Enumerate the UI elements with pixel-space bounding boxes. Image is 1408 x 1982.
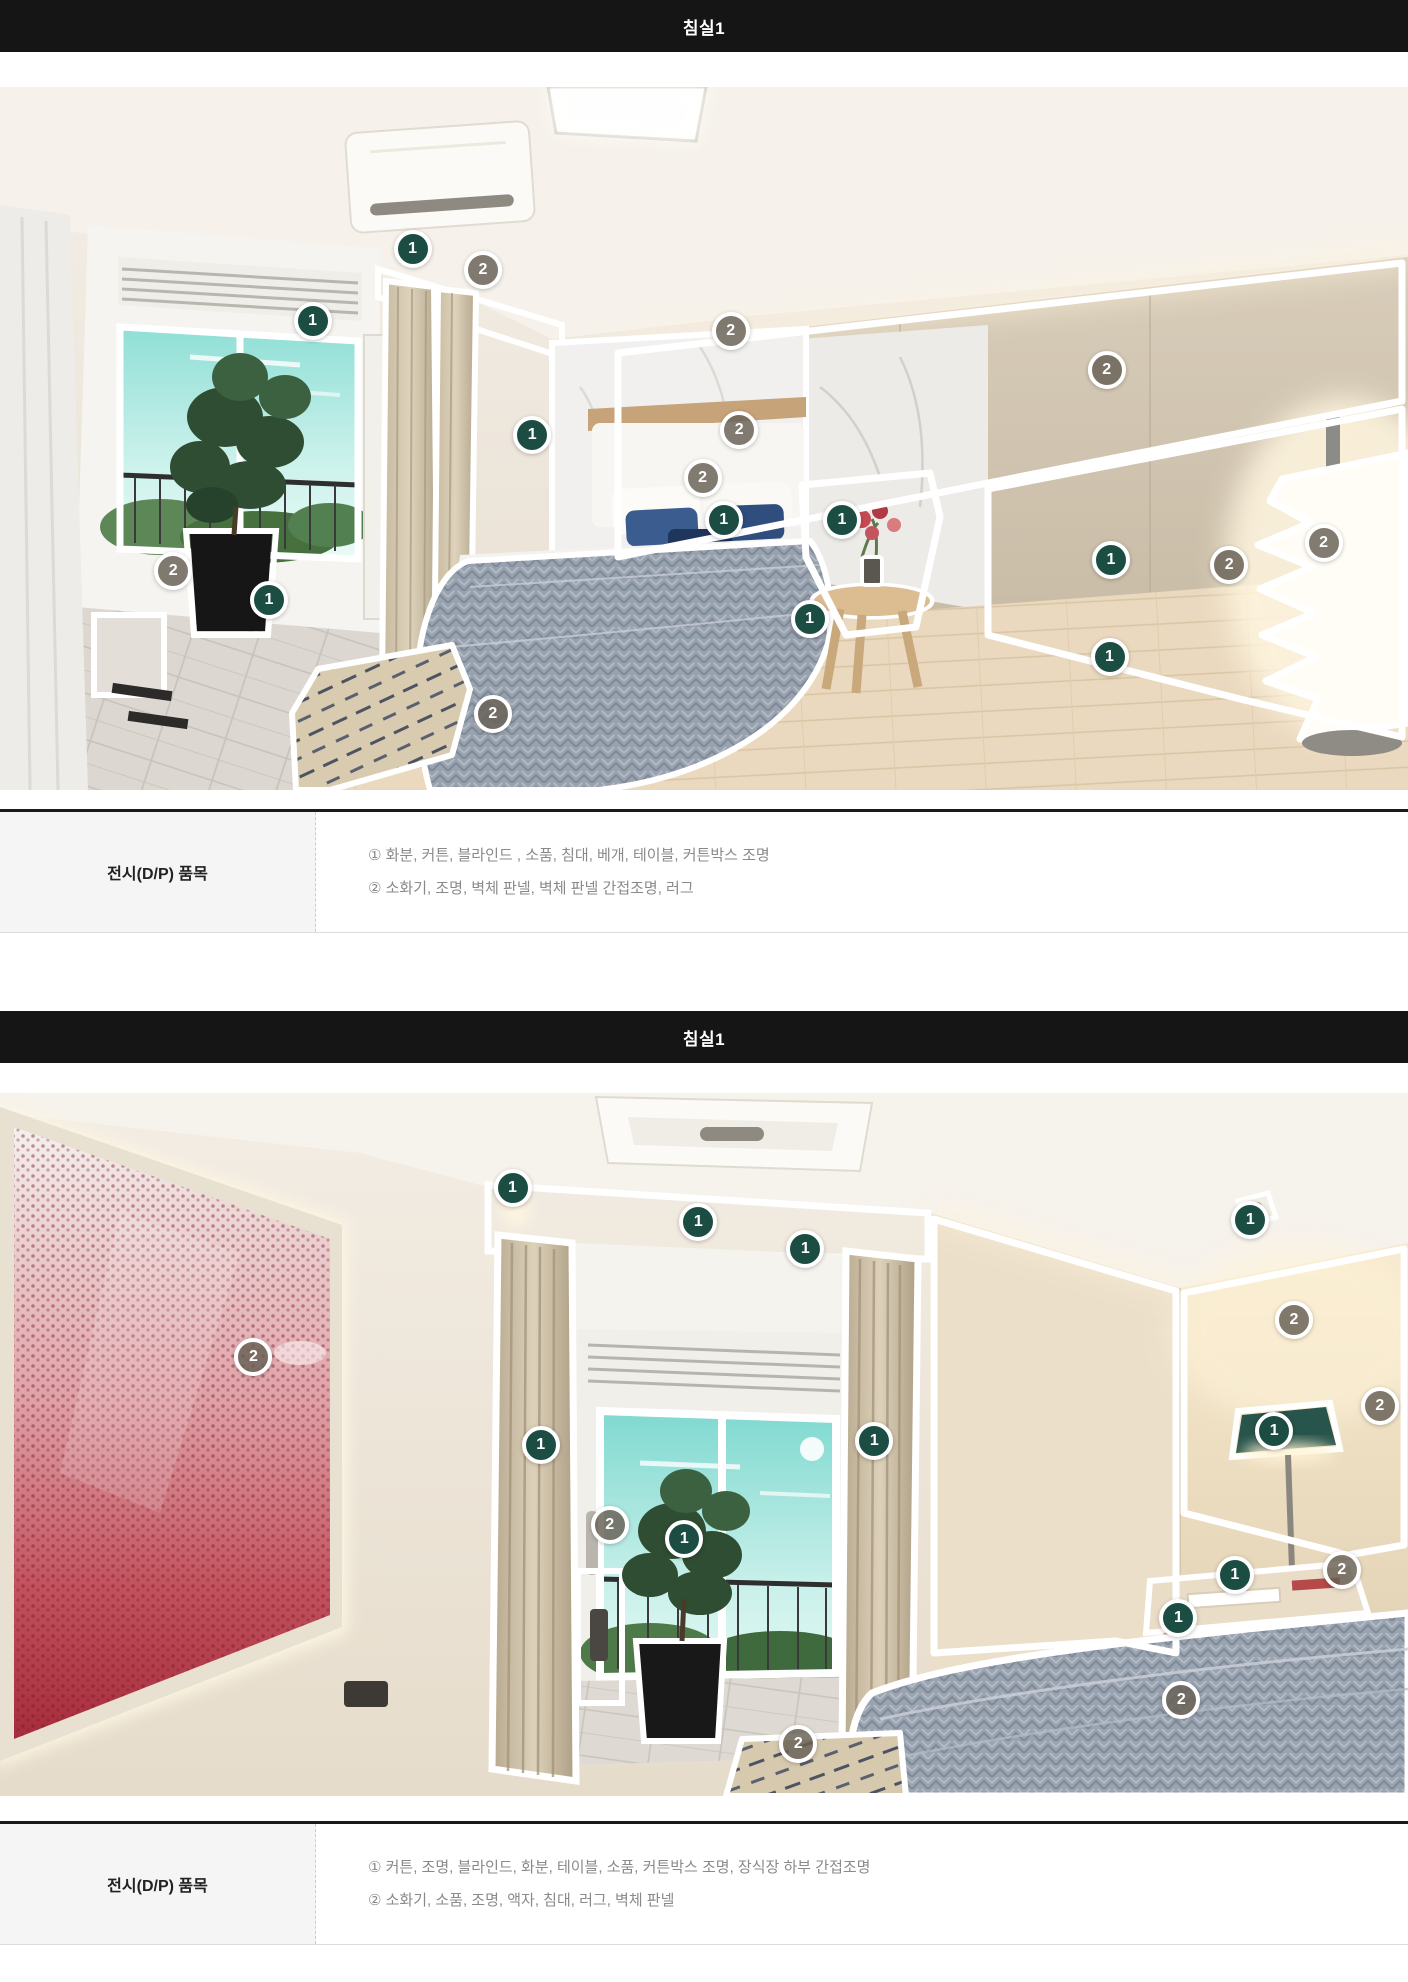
section-header-bar: 침실1 xyxy=(0,1011,1408,1063)
item-marker-2: 2 xyxy=(1088,351,1126,389)
item-marker-2: 2 xyxy=(1323,1551,1361,1589)
item-marker-1: 1 xyxy=(823,501,861,539)
bedroom-photo-1: 121122221112112122 xyxy=(0,87,1408,790)
item-marker-2: 2 xyxy=(720,411,758,449)
display-item-row-1: ① 화분, 커튼, 블라인드 , 소품, 침대, 베개, 테이블, 커튼박스 조… xyxy=(368,841,1408,871)
section-header-bar: 침실1 xyxy=(0,0,1408,52)
display-items-content: ① 화분, 커튼, 블라인드 , 소품, 침대, 베개, 테이블, 커튼박스 조… xyxy=(316,812,1408,932)
air-conditioner xyxy=(345,121,536,234)
section-divider-space xyxy=(0,933,1408,1011)
item-marker-2: 2 xyxy=(712,312,750,350)
item-marker-1: 1 xyxy=(522,1426,560,1464)
item-marker-2: 2 xyxy=(234,1338,272,1376)
item-marker-2: 2 xyxy=(154,552,192,590)
item-marker-1: 1 xyxy=(855,1422,893,1460)
item-marker-1: 1 xyxy=(786,1230,824,1268)
item-marker-2: 2 xyxy=(1275,1301,1313,1339)
item-marker-1: 1 xyxy=(1092,541,1130,579)
ceiling-light xyxy=(548,87,706,141)
display-items-label-cell: 전시(D/P) 품목 xyxy=(0,812,316,932)
item-marker-1: 1 xyxy=(294,302,332,340)
curtain-left xyxy=(492,1200,576,1781)
bedroom-photo-2: 11112221121121122 xyxy=(0,1093,1408,1796)
display-items-label: 전시(D/P) 품목 xyxy=(107,860,208,884)
section-bedroom-1b: 침실1 xyxy=(0,1011,1408,1945)
item-marker-2: 2 xyxy=(684,459,722,497)
item-marker-1: 1 xyxy=(1091,638,1129,676)
bedroom-scene-1 xyxy=(0,87,1408,790)
display-items-label-cell: 전시(D/P) 품목 xyxy=(0,1824,316,1944)
item-marker-1: 1 xyxy=(1216,1556,1254,1594)
item-marker-1: 1 xyxy=(1159,1599,1197,1637)
display-items-table: 전시(D/P) 품목 ① 커튼, 조명, 블라인드, 화분, 테이블, 소품, … xyxy=(0,1821,1408,1945)
display-items-label: 전시(D/P) 품목 xyxy=(107,1872,208,1896)
item-marker-1: 1 xyxy=(513,416,551,454)
item-marker-1: 1 xyxy=(679,1203,717,1241)
item-marker-1: 1 xyxy=(250,581,288,619)
item-marker-2: 2 xyxy=(474,695,512,733)
item-marker-2: 2 xyxy=(1162,1681,1200,1719)
item-marker-2: 2 xyxy=(779,1725,817,1763)
item-marker-2: 2 xyxy=(464,251,502,289)
display-item-row-2: ② 소화기, 조명, 벽체 판넬, 벽체 판넬 간접조명, 러그 xyxy=(368,874,1408,904)
item-marker-1: 1 xyxy=(665,1520,703,1558)
wall-outlet xyxy=(344,1681,388,1707)
item-marker-2: 2 xyxy=(1305,524,1343,562)
item-marker-1: 1 xyxy=(394,230,432,268)
item-marker-2: 2 xyxy=(1210,546,1248,584)
display-item-row-2: ② 소화기, 소품, 조명, 액자, 침대, 러그, 벽체 판넬 xyxy=(368,1886,1408,1916)
wall-marble-panel xyxy=(800,325,988,611)
item-marker-1: 1 xyxy=(791,600,829,638)
item-marker-1: 1 xyxy=(1255,1412,1293,1450)
section-bedroom-1a: 침실1 xyxy=(0,0,1408,933)
section-title: 침실1 xyxy=(683,14,725,39)
item-marker-2: 2 xyxy=(1361,1387,1399,1425)
section-title: 침실1 xyxy=(683,1025,725,1050)
item-marker-1: 1 xyxy=(1231,1201,1269,1239)
air-conditioner xyxy=(596,1097,872,1171)
item-marker-2: 2 xyxy=(591,1506,629,1544)
display-items-table: 전시(D/P) 품목 ① 화분, 커튼, 블라인드 , 소품, 침대, 베개, … xyxy=(0,809,1408,933)
item-marker-1: 1 xyxy=(705,501,743,539)
display-items-content: ① 커튼, 조명, 블라인드, 화분, 테이블, 소품, 커튼박스 조명, 장식… xyxy=(316,1824,1408,1944)
display-item-row-1: ① 커튼, 조명, 블라인드, 화분, 테이블, 소품, 커튼박스 조명, 장식… xyxy=(368,1853,1408,1883)
item-marker-1: 1 xyxy=(494,1169,532,1207)
